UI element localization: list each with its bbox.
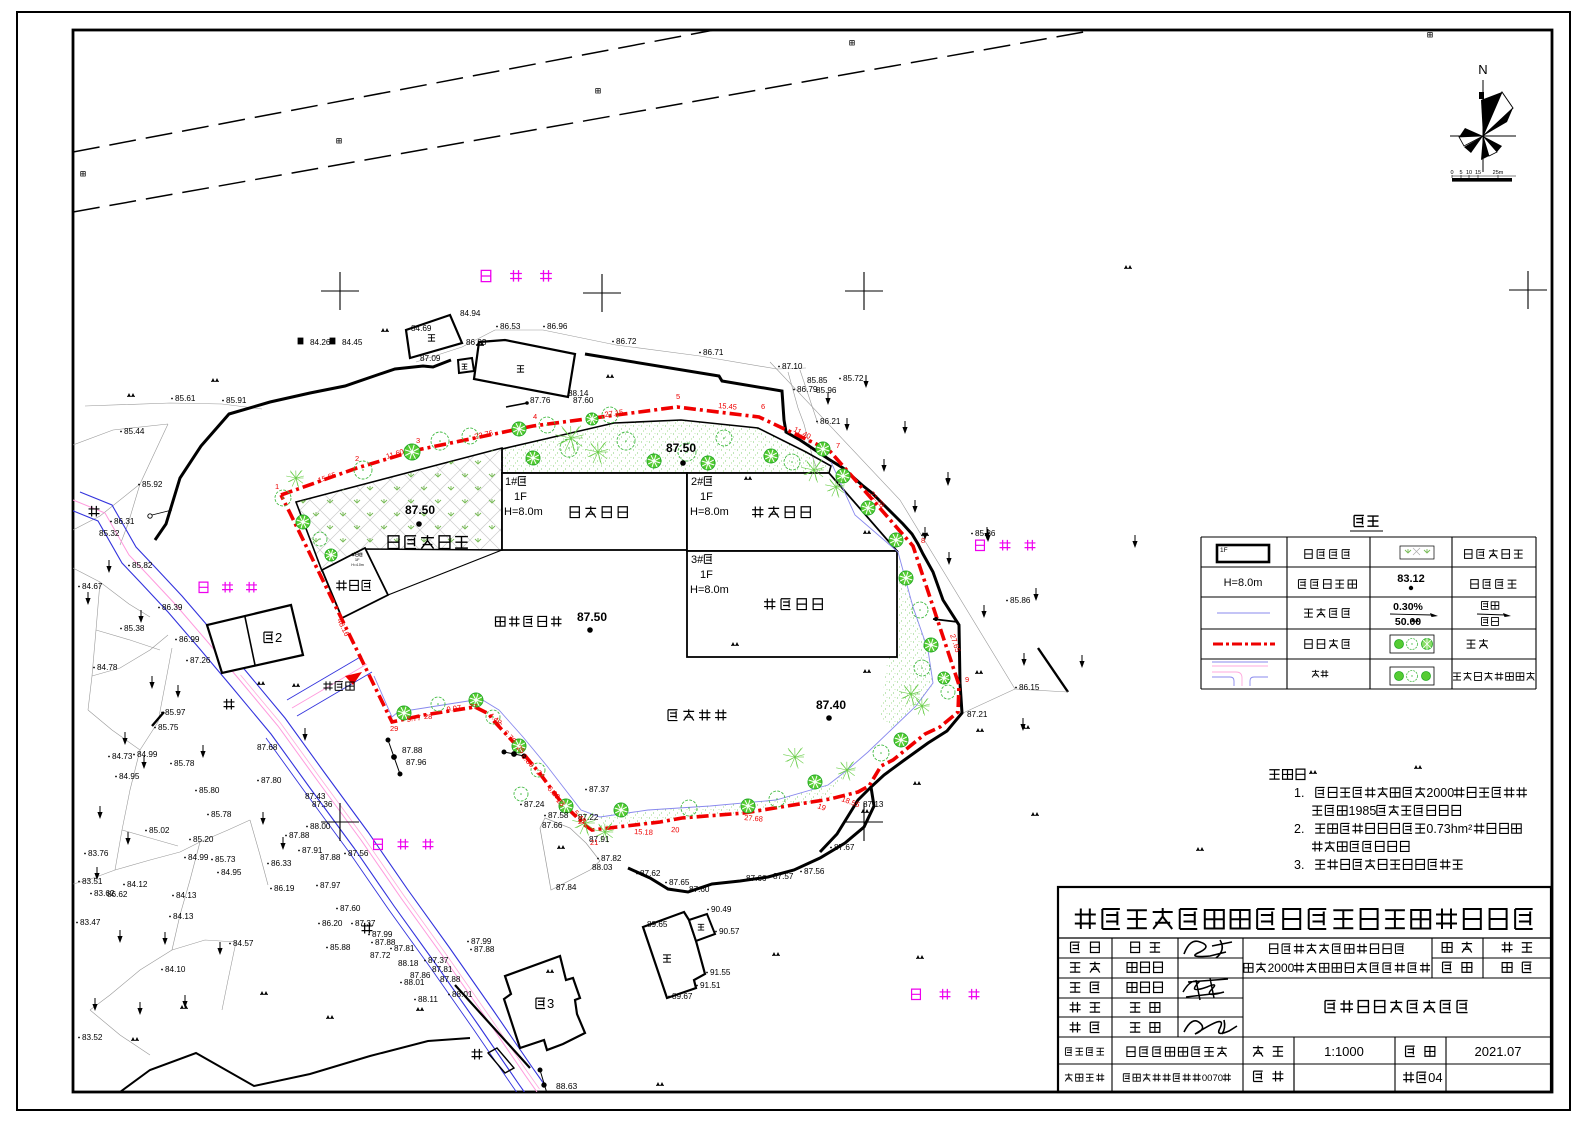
svg-text:87.86: 87.86 bbox=[410, 971, 431, 980]
svg-text:86.79: 86.79 bbox=[797, 385, 818, 394]
svg-text:84.69: 84.69 bbox=[411, 324, 432, 333]
svg-text:87.60: 87.60 bbox=[340, 904, 361, 913]
svg-text:2: 2 bbox=[355, 454, 359, 463]
svg-text:89.67: 89.67 bbox=[672, 992, 693, 1001]
svg-text:85.92: 85.92 bbox=[142, 480, 163, 489]
svg-text:87.97: 87.97 bbox=[320, 881, 341, 890]
svg-text:04: 04 bbox=[1428, 1070, 1442, 1085]
svg-text:86.33: 86.33 bbox=[271, 859, 292, 868]
svg-text:0.73hm²: 0.73hm² bbox=[1426, 822, 1472, 836]
svg-text:87.80: 87.80 bbox=[261, 776, 282, 785]
svg-text:27.68: 27.68 bbox=[744, 813, 763, 824]
svg-text:83.51: 83.51 bbox=[82, 877, 103, 886]
svg-text:83.76: 83.76 bbox=[88, 849, 109, 858]
svg-text:27: 27 bbox=[469, 702, 477, 711]
svg-text:2#: 2# bbox=[691, 476, 704, 488]
svg-text:87.24: 87.24 bbox=[524, 800, 545, 809]
svg-text:87.13: 87.13 bbox=[863, 800, 884, 809]
svg-text:85.96: 85.96 bbox=[816, 386, 837, 395]
svg-text:1F: 1F bbox=[700, 569, 713, 581]
svg-text:87.68: 87.68 bbox=[257, 743, 278, 752]
svg-text:84.57: 84.57 bbox=[233, 939, 254, 948]
svg-text:88.18: 88.18 bbox=[398, 959, 419, 968]
svg-text:85.80: 85.80 bbox=[199, 786, 220, 795]
svg-text:9: 9 bbox=[965, 675, 969, 684]
svg-text:84.12: 84.12 bbox=[127, 880, 148, 889]
svg-text:1F: 1F bbox=[1220, 547, 1228, 554]
svg-text:88.11: 88.11 bbox=[418, 995, 438, 1004]
svg-text:87.50: 87.50 bbox=[577, 610, 607, 624]
svg-text:85.72: 85.72 bbox=[843, 374, 864, 383]
svg-text:1.: 1. bbox=[1294, 786, 1304, 800]
svg-text:86.72: 86.72 bbox=[616, 337, 637, 346]
svg-text:85.91: 85.91 bbox=[226, 396, 247, 405]
svg-text:86.19: 86.19 bbox=[274, 884, 295, 893]
svg-text:87.56: 87.56 bbox=[804, 867, 825, 876]
svg-text:1985: 1985 bbox=[1349, 804, 1377, 818]
svg-text:84.10: 84.10 bbox=[165, 965, 186, 974]
svg-text:N: N bbox=[1478, 62, 1487, 77]
svg-text:88.00: 88.00 bbox=[310, 822, 331, 831]
svg-text:H=8.0m: H=8.0m bbox=[690, 584, 729, 596]
svg-text:90.49: 90.49 bbox=[711, 905, 732, 914]
svg-text:84.13: 84.13 bbox=[173, 912, 194, 921]
svg-text:3.: 3. bbox=[1294, 858, 1304, 872]
svg-text:85.61: 85.61 bbox=[175, 394, 196, 403]
svg-text:21: 21 bbox=[590, 838, 598, 847]
svg-text:20: 20 bbox=[671, 825, 680, 834]
svg-text:87.26: 87.26 bbox=[190, 656, 211, 665]
svg-text:1: 1 bbox=[275, 482, 279, 491]
svg-text:83.12: 83.12 bbox=[1397, 573, 1425, 585]
svg-text:85.82: 85.82 bbox=[132, 561, 153, 570]
svg-text:H=4.0m: H=4.0m bbox=[351, 563, 363, 567]
svg-text:84.99: 84.99 bbox=[137, 750, 158, 759]
svg-text:87.72: 87.72 bbox=[370, 951, 391, 960]
svg-text:84.99: 84.99 bbox=[188, 853, 209, 862]
svg-text:85.32: 85.32 bbox=[99, 529, 120, 538]
svg-text:83.52: 83.52 bbox=[82, 1033, 103, 1042]
svg-text:85.78: 85.78 bbox=[174, 759, 195, 768]
svg-text:85.85: 85.85 bbox=[807, 376, 828, 385]
svg-text:84.45: 84.45 bbox=[342, 338, 363, 347]
svg-text:85.44: 85.44 bbox=[124, 427, 145, 436]
svg-text:87.66: 87.66 bbox=[542, 821, 563, 830]
svg-text:87.60: 87.60 bbox=[689, 885, 710, 894]
svg-text:29: 29 bbox=[390, 724, 398, 733]
svg-text:7: 7 bbox=[836, 441, 840, 450]
svg-text:90.57: 90.57 bbox=[719, 927, 740, 936]
svg-text:0.30%: 0.30% bbox=[1393, 601, 1423, 613]
svg-text:87.81: 87.81 bbox=[394, 944, 415, 953]
svg-text:2.: 2. bbox=[1294, 822, 1304, 836]
svg-text:84.95: 84.95 bbox=[119, 772, 140, 781]
svg-text:28: 28 bbox=[424, 712, 432, 721]
svg-text:86.31: 86.31 bbox=[114, 517, 135, 526]
svg-text:85.88: 85.88 bbox=[330, 943, 351, 952]
svg-text:2000: 2000 bbox=[1426, 786, 1454, 800]
svg-text:85.97: 85.97 bbox=[165, 708, 186, 717]
svg-text:3#: 3# bbox=[691, 554, 704, 566]
svg-text:87.56: 87.56 bbox=[348, 849, 369, 858]
svg-text:91.55: 91.55 bbox=[710, 968, 731, 977]
svg-text:87.37: 87.37 bbox=[428, 956, 449, 965]
svg-text:87.65: 87.65 bbox=[669, 878, 690, 887]
svg-text:86.62: 86.62 bbox=[107, 890, 128, 899]
svg-text:87.62: 87.62 bbox=[640, 869, 661, 878]
svg-text:50.00: 50.00 bbox=[1395, 616, 1421, 628]
svg-text:86.96: 86.96 bbox=[547, 322, 568, 331]
svg-text:87.88: 87.88 bbox=[375, 938, 396, 947]
svg-text:87.37: 87.37 bbox=[589, 785, 610, 794]
svg-text:87.67: 87.67 bbox=[834, 843, 855, 852]
svg-text:84.67: 84.67 bbox=[82, 582, 103, 591]
svg-text:2000: 2000 bbox=[1268, 961, 1295, 975]
svg-text:87.60: 87.60 bbox=[573, 396, 594, 405]
svg-text:86.99: 86.99 bbox=[179, 635, 200, 644]
svg-text:6: 6 bbox=[761, 402, 765, 411]
svg-text:1:1000: 1:1000 bbox=[1324, 1044, 1364, 1059]
svg-text:84.26: 84.26 bbox=[310, 338, 331, 347]
svg-text:5: 5 bbox=[676, 392, 680, 401]
svg-text:0070: 0070 bbox=[1202, 1073, 1223, 1084]
svg-text:85.73: 85.73 bbox=[215, 855, 236, 864]
svg-text:87.88: 87.88 bbox=[289, 831, 310, 840]
svg-text:87.09: 87.09 bbox=[420, 354, 441, 363]
svg-text:88.01: 88.01 bbox=[452, 990, 473, 999]
svg-text:84.94: 84.94 bbox=[460, 309, 481, 318]
svg-text:85.86: 85.86 bbox=[975, 529, 996, 538]
svg-text:83.47: 83.47 bbox=[80, 918, 101, 927]
svg-text:87.96: 87.96 bbox=[406, 758, 427, 767]
svg-text:84.78: 84.78 bbox=[97, 663, 118, 672]
svg-text:H=8.0m: H=8.0m bbox=[1224, 577, 1263, 589]
svg-text:87.88: 87.88 bbox=[474, 945, 495, 954]
svg-text:87.66: 87.66 bbox=[746, 874, 767, 883]
svg-text:85.75: 85.75 bbox=[158, 723, 179, 732]
svg-text:87.84: 87.84 bbox=[556, 883, 577, 892]
svg-text:87.81: 87.81 bbox=[432, 965, 453, 974]
svg-text:1F: 1F bbox=[514, 491, 527, 503]
svg-text:85.86: 85.86 bbox=[1010, 596, 1031, 605]
svg-text:91.51: 91.51 bbox=[700, 981, 721, 990]
svg-text:86.39: 86.39 bbox=[162, 603, 183, 612]
svg-text:8: 8 bbox=[921, 536, 925, 545]
svg-text:84.73: 84.73 bbox=[112, 752, 133, 761]
svg-text:85.78: 85.78 bbox=[211, 810, 232, 819]
svg-text:87.88: 87.88 bbox=[320, 853, 341, 862]
svg-text:89.65: 89.65 bbox=[647, 920, 668, 929]
svg-text:85.20: 85.20 bbox=[193, 835, 214, 844]
svg-text:84.13: 84.13 bbox=[176, 891, 197, 900]
svg-text:86.20: 86.20 bbox=[322, 919, 343, 928]
svg-text:88.03: 88.03 bbox=[592, 863, 613, 872]
svg-text:87.82: 87.82 bbox=[601, 854, 622, 863]
svg-text:2021.07: 2021.07 bbox=[1475, 1044, 1522, 1059]
svg-text:87.88: 87.88 bbox=[440, 975, 461, 984]
svg-text:4: 4 bbox=[533, 412, 537, 421]
svg-text:87.36: 87.36 bbox=[312, 800, 333, 809]
svg-text:88.63: 88.63 bbox=[556, 1081, 578, 1091]
svg-text:87.57: 87.57 bbox=[773, 872, 794, 881]
svg-text:87.50: 87.50 bbox=[405, 503, 435, 517]
svg-text:86.53: 86.53 bbox=[500, 322, 521, 331]
svg-text:86.15: 86.15 bbox=[1019, 683, 1040, 692]
svg-text:86.21: 86.21 bbox=[820, 417, 841, 426]
svg-text:87.50: 87.50 bbox=[666, 441, 696, 455]
svg-text:1#: 1# bbox=[505, 476, 518, 488]
svg-text:1F: 1F bbox=[355, 557, 360, 562]
svg-text:87.58: 87.58 bbox=[548, 811, 569, 820]
svg-text:15.45: 15.45 bbox=[718, 401, 737, 412]
svg-text:3: 3 bbox=[547, 996, 554, 1011]
svg-text:87.37: 87.37 bbox=[355, 919, 376, 928]
svg-text:H=8.0m: H=8.0m bbox=[690, 506, 729, 518]
svg-text:1F: 1F bbox=[700, 491, 713, 503]
svg-text:86.93: 86.93 bbox=[466, 338, 487, 347]
svg-text:87.10: 87.10 bbox=[782, 362, 803, 371]
svg-text:85.02: 85.02 bbox=[149, 826, 170, 835]
svg-text:84.95: 84.95 bbox=[221, 868, 242, 877]
svg-text:85.38: 85.38 bbox=[124, 624, 145, 633]
svg-text:87.88: 87.88 bbox=[402, 746, 423, 755]
svg-text:86.71: 86.71 bbox=[703, 348, 724, 357]
svg-text:87.21: 87.21 bbox=[967, 710, 988, 719]
svg-text:H=8.0m: H=8.0m bbox=[504, 506, 543, 518]
svg-text:15.18: 15.18 bbox=[634, 827, 653, 837]
svg-text:3: 3 bbox=[416, 436, 420, 445]
svg-text:87.76: 87.76 bbox=[530, 396, 551, 405]
svg-text:87.40: 87.40 bbox=[816, 698, 846, 712]
svg-text:2: 2 bbox=[275, 630, 282, 645]
